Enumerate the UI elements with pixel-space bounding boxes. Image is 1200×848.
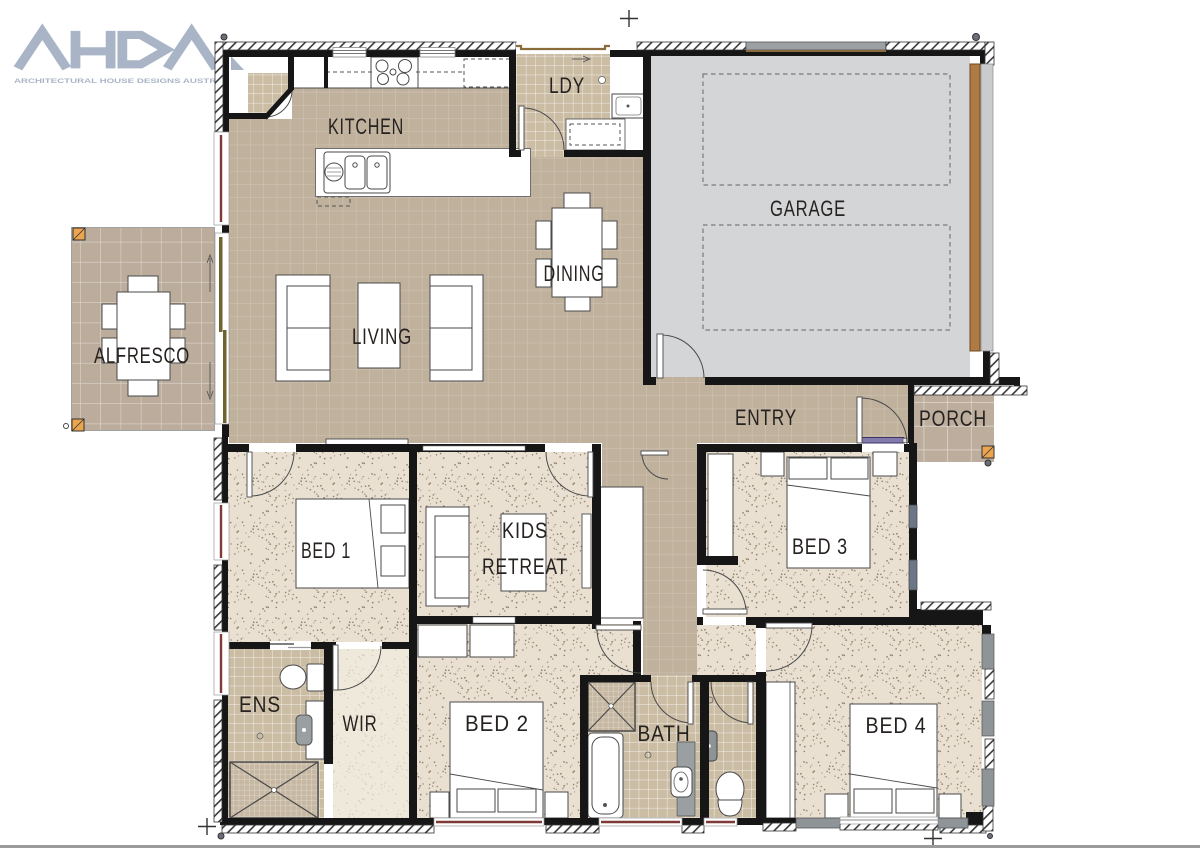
svg-text:ALFRESCO: ALFRESCO bbox=[94, 343, 190, 368]
svg-text:ENTRY: ENTRY bbox=[735, 405, 797, 430]
svg-text:WIR: WIR bbox=[343, 711, 378, 736]
svg-text:LDY: LDY bbox=[549, 73, 585, 98]
svg-text:KITCHEN: KITCHEN bbox=[328, 114, 404, 139]
svg-text:ENS: ENS bbox=[239, 692, 281, 717]
svg-text:BED 3: BED 3 bbox=[792, 534, 848, 559]
svg-text:BED 1: BED 1 bbox=[301, 538, 351, 563]
svg-text:BATH: BATH bbox=[638, 721, 691, 746]
svg-text:GARAGE: GARAGE bbox=[770, 196, 846, 221]
svg-text:DINING: DINING bbox=[544, 261, 605, 286]
svg-text:PORCH: PORCH bbox=[919, 406, 987, 431]
svg-text:BED 4: BED 4 bbox=[866, 713, 927, 738]
svg-text:BED 2: BED 2 bbox=[465, 711, 529, 736]
svg-text:LIVING: LIVING bbox=[352, 324, 412, 349]
svg-text:RETREAT: RETREAT bbox=[482, 554, 568, 579]
svg-text:ARCHITECTURAL HOUSE DESIGNS AU: ARCHITECTURAL HOUSE DESIGNS AUSTRALIA bbox=[14, 78, 239, 85]
svg-text:KIDS: KIDS bbox=[502, 518, 548, 543]
